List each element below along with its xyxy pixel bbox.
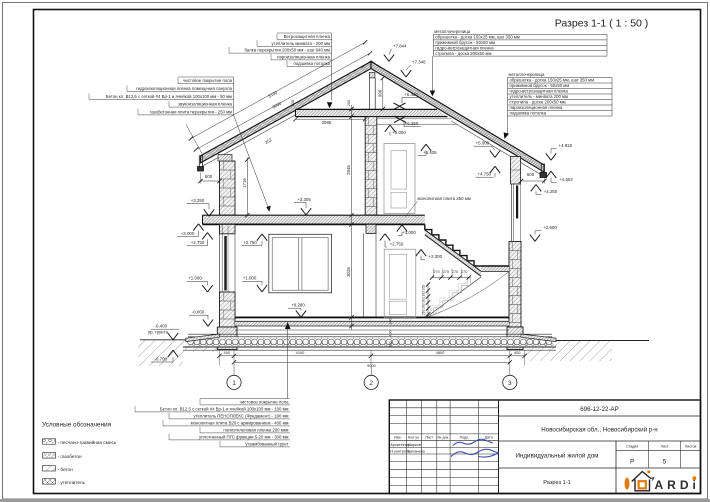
svg-text:Изм.: Изм. xyxy=(394,436,402,440)
svg-text:ARDi: ARDi xyxy=(655,478,700,492)
svg-text:Листов: Листов xyxy=(685,445,697,449)
svg-text:270: 270 xyxy=(461,270,467,274)
svg-text:стропила - доска 200х50 мм: стропила - доска 200х50 мм xyxy=(435,51,491,56)
svg-text:4100: 4100 xyxy=(296,350,305,355)
svg-text:4800: 4800 xyxy=(436,350,445,355)
svg-text:270: 270 xyxy=(443,270,449,274)
svg-text:- утеплитель: - утеплитель xyxy=(58,480,86,485)
svg-text:Баланева: Баланева xyxy=(408,450,426,454)
svg-text:Бетон кл. В12,5 с сеткой #4 Вр: Бетон кл. В12,5 с сеткой #4 Вр-1 и ячейк… xyxy=(160,406,289,411)
svg-text:№ док.: № док. xyxy=(438,436,450,440)
svg-text:600: 600 xyxy=(527,172,535,177)
svg-text:балка перекрытия 200х50 мм - ш: балка перекрытия 200х50 мм - шаг 640 мм xyxy=(245,48,330,53)
svg-text:263: 263 xyxy=(422,291,426,297)
svg-text:утеплитель минвата - 200 мм: утеплитель минвата - 200 мм xyxy=(272,41,331,46)
svg-text:2945: 2945 xyxy=(346,165,351,175)
svg-text:200: 200 xyxy=(291,100,295,106)
svg-text:2095: 2095 xyxy=(322,120,332,125)
svg-text:2: 2 xyxy=(369,380,373,387)
svg-text:+7.346: +7.346 xyxy=(412,59,426,64)
svg-text:+2.750: +2.750 xyxy=(390,241,404,246)
svg-text:Индивидуальный жилой дом: Индивидуальный жилой дом xyxy=(516,453,599,460)
svg-text:- песчано-гравийная смесь: - песчано-гравийная смесь xyxy=(58,439,117,445)
svg-text:+6.250: +6.250 xyxy=(405,121,419,126)
svg-text:3: 3 xyxy=(508,380,512,387)
svg-text:+3.000: +3.000 xyxy=(402,230,416,235)
svg-text:обрешетка - доска 150х25 мм, ш: обрешетка - доска 150х25 мм, шаг 350 мм xyxy=(510,78,595,83)
svg-text:Условные обозначения: Условные обозначения xyxy=(42,421,112,429)
svg-text:стропила - доска 200х50 мм: стропила - доска 200х50 мм xyxy=(510,100,566,105)
svg-text:утрамбованный грунт: утрамбованный грунт xyxy=(245,441,288,446)
svg-text:- бетон: - бетон xyxy=(58,467,74,472)
svg-text:9000: 9000 xyxy=(367,363,376,368)
svg-text:уплотненный ПГС фракции 5-20 м: уплотненный ПГС фракции 5-20 мм - 300 мм xyxy=(199,434,288,439)
svg-text:- газобетон: - газобетон xyxy=(58,454,83,459)
svg-text:+6.450: +6.450 xyxy=(404,92,418,97)
svg-text:Стадия: Стадия xyxy=(626,445,638,449)
svg-text:+2.750: +2.750 xyxy=(191,240,205,245)
svg-text:Лист: Лист xyxy=(425,436,433,440)
svg-text:263: 263 xyxy=(422,285,426,291)
svg-text:обрешетка - доска 150х25 мм, ш: обрешетка - доска 150х25 мм, шаг 350 мм xyxy=(435,35,520,40)
svg-text:металлочерепица: металлочерепица xyxy=(509,72,545,77)
svg-text:400: 400 xyxy=(389,331,393,337)
svg-text:Марков: Марков xyxy=(408,443,421,447)
svg-text:1: 1 xyxy=(232,380,236,387)
svg-text:+3.305: +3.305 xyxy=(297,197,311,202)
svg-text:пароизоляционная пленка: пароизоляционная пленка xyxy=(510,105,563,110)
svg-text:чистовое покрытие пола: чистовое покрытие пола xyxy=(240,399,289,404)
svg-text:-0.400: -0.400 xyxy=(155,324,168,329)
svg-text:прижимной брусок - 50х50 мм: прижимной брусок - 50х50 мм xyxy=(435,40,495,45)
svg-text:263: 263 xyxy=(422,309,426,315)
svg-text:+5.405: +5.405 xyxy=(423,150,437,155)
svg-text:Ветрозащитная пленка: Ветрозащитная пленка xyxy=(284,34,331,39)
svg-text:ур. грунта: ур. грунта xyxy=(148,329,169,334)
svg-text:270: 270 xyxy=(433,270,439,274)
svg-text:+3.000: +3.000 xyxy=(181,231,195,236)
svg-text:600: 600 xyxy=(205,174,213,179)
svg-text:696-12-22-АР: 696-12-22-АР xyxy=(580,406,619,413)
svg-text:270: 270 xyxy=(452,270,458,274)
svg-text:звукоизоляционная пленка: звукоизоляционная пленка xyxy=(178,102,233,107)
svg-text:чистовое покрытие пола: чистовое покрытие пола xyxy=(183,78,232,83)
svg-text:монолитная плита В20 с армиров: монолитная плита В20 с армированием - 40… xyxy=(191,420,289,425)
svg-text:полиэтиленовая пленка 200 мкм: полиэтиленовая пленка 200 мкм xyxy=(223,427,288,432)
svg-text:+2.750: +2.750 xyxy=(243,240,257,245)
svg-text:утеплитель ПЕНОПЛЕКС (Фундамен: утеплитель ПЕНОПЛЕКС (Фундамент) - 100 м… xyxy=(193,413,288,418)
svg-text:металлочерепица: металлочерепица xyxy=(434,29,470,34)
svg-text:монолитная плита 250 мм: монолитная плита 250 мм xyxy=(418,196,471,201)
svg-text:гидро-ветрозащитная пленка: гидро-ветрозащитная пленка xyxy=(435,45,494,50)
svg-text:1716: 1716 xyxy=(242,178,247,188)
svg-text:гидро-ветрозащитная пленка: гидро-ветрозащитная пленка xyxy=(510,89,569,94)
svg-text:Лист: Лист xyxy=(661,445,669,449)
svg-text:263: 263 xyxy=(422,303,426,309)
svg-text:5: 5 xyxy=(663,459,667,466)
svg-text:-0.700: -0.700 xyxy=(155,356,168,361)
svg-text:Разрез 1-1 ( 1 : 50 ): Разрез 1-1 ( 1 : 50 ) xyxy=(555,18,649,30)
svg-text:+7.844: +7.844 xyxy=(393,44,407,49)
svg-text:400: 400 xyxy=(514,350,521,355)
svg-text:3025: 3025 xyxy=(346,267,351,277)
svg-text:+3.250: +3.250 xyxy=(191,198,205,203)
svg-text:прижимной брусок - 50х50 мм: прижимной брусок - 50х50 мм xyxy=(510,83,570,88)
svg-text:+5.000: +5.000 xyxy=(476,141,490,146)
svg-text:пароизоляционная пленка: пароизоляционная пленка xyxy=(277,54,330,59)
svg-text:Дата: Дата xyxy=(485,436,493,440)
svg-text:+4.250: +4.250 xyxy=(544,189,558,194)
svg-text:подшивка потолка: подшивка потолка xyxy=(510,111,547,116)
svg-text:подшивка потолка: подшивка потолка xyxy=(293,61,330,66)
svg-text:+4.919: +4.919 xyxy=(559,143,573,148)
svg-text:+2.500: +2.500 xyxy=(543,225,557,230)
svg-text:гидроизоляционная пленка помещ: гидроизоляционная пленка помещения сануз… xyxy=(136,86,232,91)
svg-text:+1.000: +1.000 xyxy=(243,276,257,281)
svg-text:+1.000: +1.000 xyxy=(188,276,202,281)
svg-text:+0.280: +0.280 xyxy=(291,303,305,308)
svg-text:300: 300 xyxy=(389,342,393,348)
svg-text:263: 263 xyxy=(422,297,426,303)
svg-text:+2.300: +2.300 xyxy=(429,254,443,259)
svg-text:100: 100 xyxy=(389,319,393,325)
svg-text:Кол.уч.: Кол.уч. xyxy=(408,436,420,440)
svg-text:Р: Р xyxy=(630,459,634,466)
svg-text:996: 996 xyxy=(377,89,382,97)
svg-text:+4.750: +4.750 xyxy=(477,172,491,177)
svg-text:+4.602: +4.602 xyxy=(559,177,573,182)
svg-text:-0.000: -0.000 xyxy=(192,310,205,315)
svg-text:Бетон кл. В12,5 с сеткой #4 Вр: Бетон кл. В12,5 с сеткой #4 Вр-1 и ячейк… xyxy=(106,94,232,99)
svg-text:утеплитель - минвата 200 мм: утеплитель - минвата 200 мм xyxy=(510,94,569,99)
svg-text:400: 400 xyxy=(224,350,231,355)
svg-text:Новосибирская обл., Новосибирс: Новосибирская обл., Новосибирский р-н xyxy=(541,427,657,434)
svg-text:Подп.: Подп. xyxy=(460,436,470,440)
svg-text:200: 200 xyxy=(347,100,351,106)
svg-text:газобетонная плита перекрытия: газобетонная плита перекрытия - 250 мм xyxy=(150,109,232,114)
svg-text:Разрез 1-1: Разрез 1-1 xyxy=(543,480,570,486)
